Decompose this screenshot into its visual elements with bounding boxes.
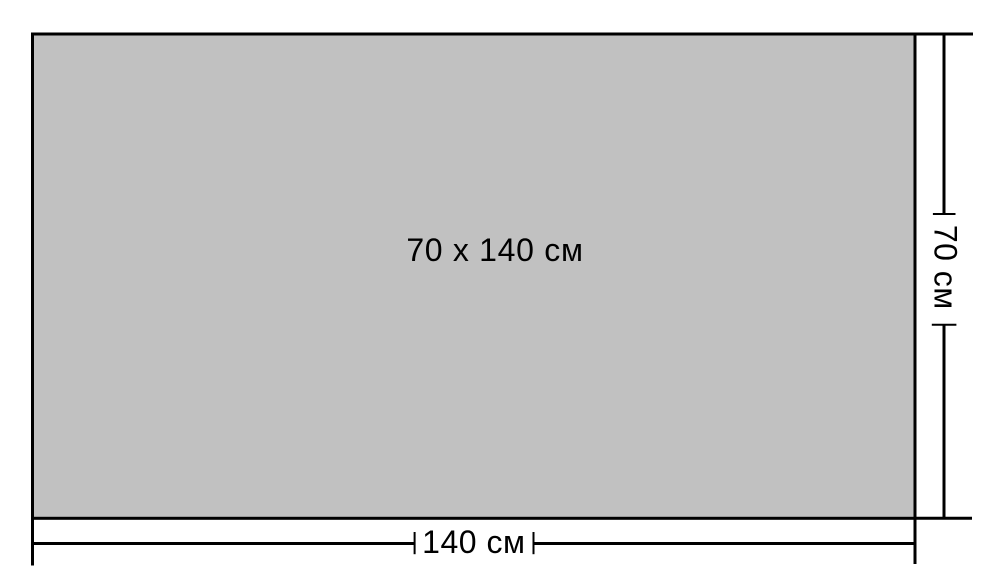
svg-text:70 x 140 см: 70 x 140 см [406, 232, 583, 268]
svg-text:70 см: 70 см [928, 225, 964, 310]
svg-text:140 см: 140 см [422, 524, 525, 560]
